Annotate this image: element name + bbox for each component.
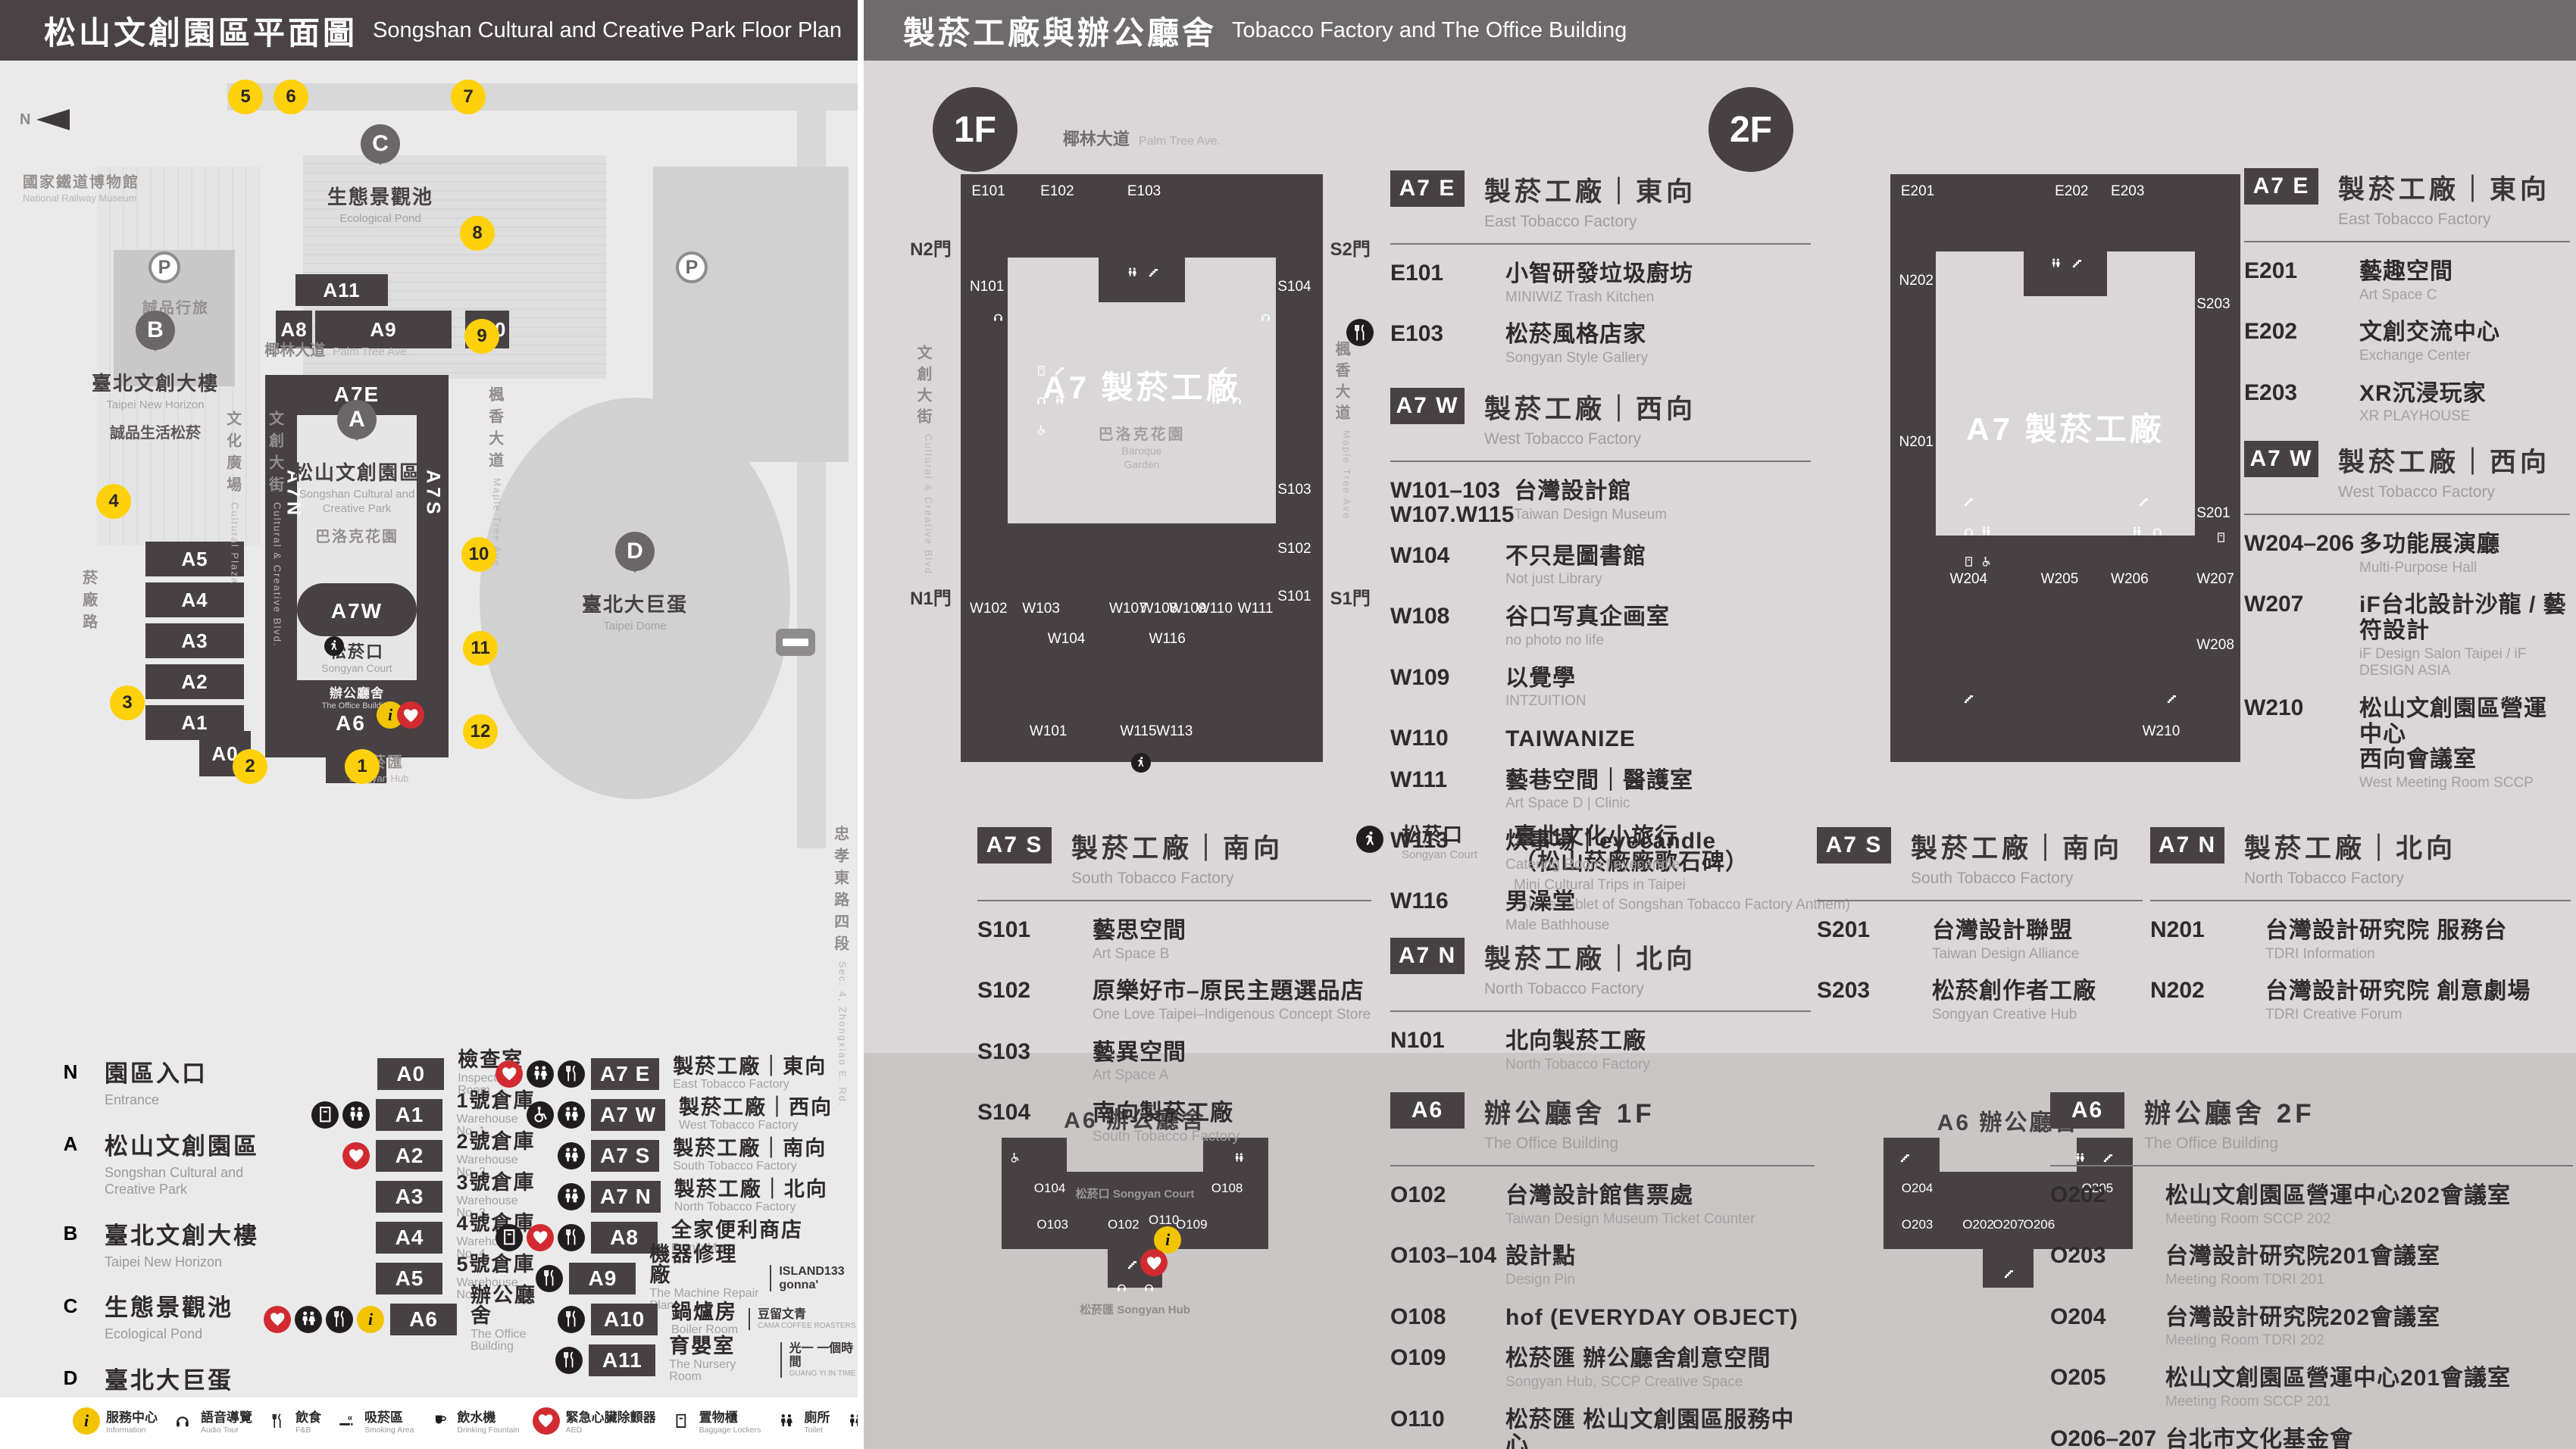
wall <box>2024 251 2108 296</box>
park-label: 菸廠路 <box>79 570 97 635</box>
legend-marker: N <box>53 1054 88 1089</box>
legend-row: A7 W 製菸工廠｜西向West Tobacco Factory <box>485 1098 864 1132</box>
strip-item: 飲食F&B <box>265 1407 321 1435</box>
north-label: N <box>20 111 30 129</box>
room-code: E103 <box>1390 322 1505 346</box>
legend-marker: D <box>53 1361 88 1396</box>
map-icon <box>397 701 424 729</box>
map-room: W204 <box>1950 571 1988 588</box>
room-name-zh: 台灣設計研究院 服務台 <box>2265 918 2507 944</box>
section-rule <box>1390 461 1811 462</box>
north-arrow-icon <box>36 109 70 130</box>
room-name-en: Art Space C <box>2359 287 2453 304</box>
room-code: S203 <box>1817 979 1932 1003</box>
legend-marker: B <box>53 1216 88 1251</box>
parking-icon: P <box>676 251 708 283</box>
map-room: W113 <box>1156 723 1193 740</box>
section-title-en: West Tobacco Factory <box>1484 430 1696 448</box>
map-icon <box>1140 1249 1168 1276</box>
section-title-en: East Tobacco Factory <box>1484 213 1696 231</box>
directory-row: W207 iF台北設計沙龍 / 藝符設計 iF Design Salon Tai… <box>2244 592 2570 680</box>
map-room: W115 <box>1120 723 1156 740</box>
header-park-title-en: Songshan Cultural and Creative Park Floo… <box>373 18 842 43</box>
room-name-zh: 台灣設計館售票處 <box>1505 1183 1755 1209</box>
bus-icon <box>776 629 815 656</box>
legend-places: N 園區入口Entrance A 松山文創園區Songshan Cultural… <box>53 1054 280 1433</box>
directory-section-f2a7n: A7 N 製菸工廠｜北向 North Tobacco Factory N201 … <box>2150 827 2571 1040</box>
room-name-en: Meeting Room TDRI 201 <box>2165 1272 2440 1289</box>
directory-row: W113 炊事場｜eyecandle Catering Room | eyeca… <box>1390 829 1811 873</box>
room-code: W104 <box>1390 544 1505 568</box>
gate-label: S1門 <box>1330 583 1371 610</box>
persons-icon <box>1124 264 1140 280</box>
headset-icon <box>1229 392 1246 408</box>
locker-icon <box>669 1409 693 1433</box>
locker-icon <box>311 1101 339 1129</box>
park-map: N P P A11A8A9A10A5A4A3A2A1A0 國家鐵道博物館Nati… <box>0 61 864 1053</box>
fork-icon <box>265 1409 289 1433</box>
map-icon <box>324 636 344 657</box>
legend-row: A7 S 製菸工廠｜南向South Tobacco Factory <box>485 1138 864 1173</box>
map-room: W111 <box>1238 601 1274 617</box>
map-icon <box>1207 392 1224 409</box>
fork-icon <box>558 1224 585 1251</box>
section-badge: A7 N <box>1390 938 1465 974</box>
persons-icon <box>774 1409 798 1433</box>
persons-icon <box>1207 392 1224 408</box>
map-room: E103 <box>1127 183 1161 200</box>
map-room: W208 <box>2196 637 2234 654</box>
map-icon <box>2135 493 2152 511</box>
legend-place-row: A 松山文創園區Songshan Cultural and Creative P… <box>53 1127 280 1198</box>
room-name-en: Exchange Center <box>2359 348 2500 365</box>
section-title-zh: 製菸工廠｜南向 <box>1911 827 2123 866</box>
map-icon <box>1215 362 1231 379</box>
room-name-zh: 不只是圖書館 <box>1505 544 1646 570</box>
directory-row: S102 原樂好市–原民主題選品店 One Love Taipei–Indige… <box>977 979 1371 1023</box>
room-name-zh: hof (EVERYDAY OBJECT) <box>1505 1305 1799 1331</box>
map-icon <box>1124 1256 1141 1273</box>
map-room: W205 <box>2041 571 2079 588</box>
map-icon <box>2149 523 2166 541</box>
headset-icon <box>2149 523 2166 540</box>
room-code: S103 <box>977 1040 1093 1064</box>
directory-row: S201 台灣設計聯盟 Taiwan Design Alliance <box>1817 918 2143 963</box>
i-icon: i <box>73 1407 100 1435</box>
i-icon: i <box>357 1306 384 1333</box>
room-name-en: no photo no life <box>1505 632 1670 650</box>
cig-icon <box>334 1409 358 1433</box>
room-name-en: TDRI Information <box>2265 946 2507 963</box>
park-building: A2 <box>145 664 244 699</box>
room-code: O203 <box>2050 1244 2165 1268</box>
room-name-zh: 以覺學 <box>1505 666 1587 692</box>
legend-row: A7 E 製菸工廠｜東向East Tobacco Factory <box>485 1057 864 1091</box>
section-title-zh: 辦公廳舍 1F <box>1484 1092 1655 1131</box>
map-room: S103 <box>1277 482 1311 498</box>
room-name-zh: 原樂好市–原民主題選品店 <box>1093 979 1371 1004</box>
room-name-en: Art Space D | Clinic <box>1505 795 1693 813</box>
section-badge: A7 E <box>1390 170 1465 207</box>
wheelchair-icon <box>527 1101 554 1129</box>
room-name-en: Art Space A <box>1093 1067 1186 1085</box>
room-name-zh: 台灣設計研究院 創意劇場 <box>2265 979 2531 1004</box>
entrance-number: 2 <box>233 749 267 784</box>
directory-row: W108 谷口写真企画室 no photo no life <box>1390 604 1811 649</box>
stairs-icon <box>1960 493 1977 510</box>
room-code: N202 <box>2150 979 2265 1003</box>
strip-item: 廁所Toilet <box>774 1407 830 1435</box>
directory-row: E203 XR沉浸玩家 XR PLAYHOUSE <box>2244 381 2570 426</box>
strip-item: 飲水機Drinking Fountain <box>427 1407 519 1435</box>
room-name-en: West Meeting Room SCCP <box>2359 775 2570 792</box>
header-factory: 製菸工廠與辦公廳舍 Tobacco Factory and The Office… <box>864 0 2576 61</box>
map-icon <box>1978 523 1995 541</box>
map-room: W101 <box>1030 723 1068 740</box>
room-code: W109 <box>1390 666 1505 690</box>
map-icon <box>1258 308 1274 326</box>
room-name-en: Meeting Room SCCP 201 <box>2165 1394 2511 1411</box>
legend-place-row: N 園區入口Entrance <box>53 1054 280 1109</box>
parking-icon: P <box>148 251 180 283</box>
room-name-en: North Tobacco Factory <box>1505 1057 1650 1074</box>
locker-icon <box>496 1224 523 1251</box>
room-name-zh: iF台北設計沙龍 / 藝符設計 <box>2359 592 2570 643</box>
strip-item: 吸菸區Smoking Area <box>334 1407 414 1435</box>
directory-row: O110 松菸匯 松山文創園區服務中心 Songyan Hub, SCCP In… <box>1390 1407 1815 1449</box>
map-room: S201 <box>2196 505 2230 522</box>
gate-label: N2門 <box>910 234 952 261</box>
room-code: O102 <box>1390 1183 1505 1207</box>
wheelchair-icon <box>1033 422 1050 439</box>
room-code: S104 <box>977 1101 1093 1125</box>
persons-icon <box>558 1101 585 1129</box>
map-room: E203 <box>2111 183 2144 200</box>
persons-icon <box>295 1306 322 1333</box>
map-icon <box>1960 690 1977 707</box>
room-code: O202 <box>2050 1183 2165 1207</box>
section-title-zh: 製菸工廠｜東向 <box>2338 168 2550 207</box>
section-title-zh: 製菸工廠｜南向 <box>1071 827 1283 866</box>
room-code: O108 <box>1390 1305 1505 1329</box>
locker-icon <box>1960 553 1977 570</box>
map-icon <box>2069 255 2086 272</box>
entrance-number: 8 <box>460 216 495 251</box>
room-code: W101–103W107.W115 <box>1390 479 1514 528</box>
strip-item: 置物櫃Baggage Lockers <box>669 1407 761 1435</box>
map-room: S102 <box>1277 541 1311 557</box>
section-badge: A7 S <box>977 827 1052 863</box>
header-park: 松山文創園區平面圖 Songshan Cultural and Creative… <box>0 0 864 61</box>
directory-row: S101 藝思空間 Art Space B <box>977 918 1371 963</box>
heart-icon <box>496 1060 523 1088</box>
room-name-zh: 台灣設計研究院202會議室 <box>2165 1305 2440 1331</box>
section-title-zh: 製菸工廠｜北向 <box>2244 827 2456 866</box>
legend-marker: C <box>53 1288 88 1323</box>
map-room: O203 <box>1902 1217 1934 1232</box>
map-room: W110 <box>1196 601 1233 617</box>
directory-section-f2a7s: A7 S 製菸工廠｜南向 South Tobacco Factory S201 … <box>1817 827 2143 1040</box>
directory-row: O202 松山文創園區營運中心202會議室 Meeting Room SCCP … <box>2050 1183 2573 1228</box>
map-room: E201 <box>1901 183 1934 200</box>
map-room: W102 <box>970 601 1008 617</box>
legend-row: A10 鍋爐房Boiler Room 豆留文青CAMA COFFEE ROAST… <box>485 1302 864 1336</box>
wall <box>1099 258 1186 302</box>
directory-row: W110 TAIWANIZE <box>1390 726 1811 752</box>
directory-section-f2a7w: A7 W 製菸工廠｜西向 West Tobacco Factory W204–2… <box>2244 441 2570 808</box>
section-title-en: The Office Building <box>2144 1135 2315 1153</box>
section-badge: A6 <box>1390 1092 1465 1129</box>
directory-row: O108 hof (EVERYDAY OBJECT) <box>1390 1305 1815 1331</box>
room-name-zh: 多功能展演廳 <box>2359 532 2500 557</box>
map-icon <box>2000 1265 2017 1282</box>
legend-buildings-b: A7 E 製菸工廠｜東向East Tobacco Factory A7 W 製菸… <box>485 1057 864 1384</box>
headset-icon <box>1140 1279 1157 1295</box>
room-name-zh: 松菸創作者工廠 <box>1932 979 2096 1004</box>
room-name-en: South Tobacco Factory <box>1093 1129 1240 1146</box>
room-code: O103–104 <box>1390 1244 1505 1268</box>
section-rule <box>1390 1010 1811 1012</box>
section-rule <box>2150 900 2571 901</box>
map-room: O202 <box>1962 1217 1994 1232</box>
fork-icon <box>555 1347 583 1374</box>
fork-icon <box>558 1060 585 1088</box>
directory-row: O102 台灣設計館售票處 Taiwan Design Museum Ticke… <box>1390 1183 1815 1228</box>
panel-divider <box>858 0 864 1449</box>
park-label: A6 <box>336 710 366 735</box>
section-title-en: The Office Building <box>1484 1135 1655 1153</box>
park-building: A4 <box>145 582 244 617</box>
songyan-court-label: 松菸口 Songyan Court <box>1076 1185 1195 1201</box>
fork-icon <box>558 1306 585 1333</box>
header-park-title-zh: 松山文創園區平面圖 <box>44 8 358 54</box>
room-name-zh: 南向製菸工廠 <box>1093 1101 1240 1126</box>
room-code: S101 <box>977 918 1093 942</box>
road-top <box>227 83 864 111</box>
directory-row: W104 不只是圖書館 Not just Library <box>1390 544 1811 589</box>
room-name-zh: 松菸匯 辦公廳舍創意空間 <box>1505 1346 1771 1372</box>
room-name-en: Meeting Room SCCP 202 <box>2165 1211 2511 1229</box>
map-room: W207 <box>2196 571 2234 588</box>
section-title-zh: 製菸工廠｜北向 <box>1484 938 1696 976</box>
room-code: W207 <box>2244 592 2359 617</box>
floor-badge-2f: 2F <box>1708 87 1793 172</box>
room-name-en: Songyan Style Gallery <box>1505 350 1648 367</box>
map-room: E102 <box>1040 183 1074 200</box>
section-title-en: North Tobacco Factory <box>1484 980 1696 998</box>
persons-icon <box>2128 523 2145 540</box>
section-title-en: North Tobacco Factory <box>2244 870 2456 888</box>
persons-icon <box>558 1183 585 1210</box>
gate-label: S2門 <box>1330 234 1371 261</box>
headset-icon <box>1960 523 1977 540</box>
room-name-en: Songyan Creative Hub <box>1932 1007 2096 1024</box>
map-icon <box>1052 362 1068 379</box>
directory-row: N202 台灣設計研究院 創意劇場 TDRI Creative Forum <box>2150 979 2571 1023</box>
room-code: E202 <box>2244 320 2359 344</box>
section-badge: A7 W <box>2244 441 2318 477</box>
room-name-en: Taiwan Design Museum Ticket Counter <box>1505 1211 1755 1229</box>
map-icon <box>1960 553 1977 570</box>
persons-icon <box>2048 255 2065 271</box>
walker-icon <box>324 636 344 656</box>
section-title-zh: 製菸工廠｜西向 <box>1484 388 1696 426</box>
legend-place-row: B 臺北文創大樓Taipei New Horizon <box>53 1216 280 1271</box>
room-name-zh: 松菸風格店家 <box>1505 322 1648 348</box>
map-room: S203 <box>2196 296 2230 313</box>
map-icon <box>1033 362 1050 379</box>
map-icon <box>1131 753 1151 773</box>
room-name-en: Design Pin <box>1505 1272 1576 1289</box>
map-room: O104 <box>1034 1181 1066 1196</box>
directory-section-f1a6: A6 辦公廳舍 1F The Office Building O102 台灣設計… <box>1390 1092 1815 1449</box>
map-icon <box>2128 523 2145 541</box>
heart-icon <box>1140 1249 1168 1276</box>
cup-icon <box>427 1409 451 1433</box>
room-code: S201 <box>1817 918 1932 942</box>
room-name-en: XR PLAYHOUSE <box>2359 408 2487 426</box>
directory-row: W111 藝巷空間｜醫護室 Art Space D | Clinic <box>1390 768 1811 813</box>
section-rule <box>1390 1165 1815 1166</box>
directory-row: E101 小智研發垃圾廚坊 MINIWIZ Trash Kitchen <box>1390 261 1811 306</box>
room-name-en: INTZUITION <box>1505 693 1587 710</box>
room-name-zh: 台灣設計館 <box>1514 479 1667 504</box>
directory-row: W109 以覺學 INTZUITION <box>1390 666 1811 710</box>
room-code: W204–206 <box>2244 532 2359 556</box>
directory-section-f2a6: A6 辦公廳舍 2F The Office Building O202 松山文創… <box>2050 1092 2573 1449</box>
map-icon <box>1033 392 1050 409</box>
room-name-en: Meeting Room TDRI 202 <box>2165 1332 2440 1350</box>
wall <box>961 258 1008 762</box>
room-name-zh: 松菸匯 松山文創園區服務中心 <box>1505 1407 1815 1449</box>
strip-item: i 服務中心Information <box>73 1407 158 1435</box>
room-code: W110 <box>1390 726 1505 751</box>
map-room: N101 <box>970 279 1004 295</box>
room-name-zh: XR沉浸玩家 <box>2359 381 2487 407</box>
directory-section-f1a7w: A7 W 製菸工廠｜西向 West Tobacco Factory W101–1… <box>1390 388 1811 951</box>
headset-icon <box>170 1409 195 1433</box>
floor2-map: A7 製菸工廠 E201E202E203N202N201S203S201W204… <box>1890 165 2240 762</box>
room-name-en: Multi-Purpose Hall <box>2359 560 2500 577</box>
fork-icon <box>1346 319 1374 346</box>
room-code: W113 <box>1390 829 1505 853</box>
map-icon <box>2048 255 2065 272</box>
map-icon <box>1052 392 1068 409</box>
gate-label: N1門 <box>910 583 952 610</box>
map-room: N201 <box>1899 434 1934 451</box>
street-palm-tree: 椰林大道Palm Tree Ave. <box>961 126 1323 150</box>
stairs-icon <box>2069 255 2086 271</box>
room-name-zh: 松山文創園區營運中心 <box>2359 696 2570 747</box>
directory-row: O203 台灣設計研究院201會議室 Meeting Room TDRI 201 <box>2050 1244 2573 1288</box>
map-room: O102 <box>1108 1217 1140 1232</box>
map-icon <box>1146 264 1162 281</box>
room-name-zh: 藝異空間 <box>1093 1040 1186 1066</box>
map-room: E101 <box>971 183 1005 200</box>
a7-factory-label: A7 製菸工廠 <box>1940 404 2192 450</box>
map-room: W104 <box>1048 631 1124 714</box>
directory-section-f1a7e: A7 E 製菸工廠｜東向 East Tobacco Factory E101 小… <box>1390 170 1811 383</box>
room-name-zh: 藝趣空間 <box>2359 259 2453 285</box>
room-code: W116 <box>1390 889 1505 913</box>
heart-icon <box>527 1224 554 1251</box>
room-name-zh: 文創交流中心 <box>2359 320 2500 345</box>
section-title-en: East Tobacco Factory <box>2338 211 2550 229</box>
map-room: O207 <box>1993 1217 2024 1232</box>
directory-row: E202 文創交流中心 Exchange Center <box>2244 320 2570 364</box>
park-building: A11 <box>295 274 388 306</box>
room-name-zh: 台灣設計聯盟 <box>1932 918 2079 944</box>
legend-row: A7 N 製菸工廠｜北向North Tobacco Factory <box>485 1179 864 1213</box>
room-code: W111 <box>1390 768 1505 792</box>
directory-row: S203 松菸創作者工廠 Songyan Creative Hub <box>1817 979 2143 1023</box>
park-label: 巴洛克花園 <box>315 529 399 547</box>
directory-row: O103–104 設計點 Design Pin <box>1390 1244 1815 1288</box>
map-room: W206 <box>2111 571 2149 588</box>
map-room: W210 <box>2143 723 2181 740</box>
heart-icon <box>397 701 424 729</box>
section-title-en: West Tobacco Factory <box>2338 483 2550 501</box>
songyan-hub-label: 松菸匯 Songyan Hub <box>1080 1301 1190 1317</box>
room-name-zh: 谷口写真企画室 <box>1505 604 1670 630</box>
directory-row: O204 台灣設計研究院202會議室 Meeting Room TDRI 202 <box>2050 1305 2573 1350</box>
map-room: N202 <box>1899 273 1934 289</box>
room-name-en: Catering Room | eyecandle <box>1505 857 1716 874</box>
directory-row: S104 南向製菸工廠 South Tobacco Factory <box>977 1101 1371 1145</box>
locker-icon <box>2212 529 2229 546</box>
stairs-icon <box>1052 362 1068 379</box>
heart-icon <box>533 1407 560 1435</box>
map-icon <box>1140 1279 1157 1296</box>
entrance-number: 10 <box>461 537 496 572</box>
map-pin: B 臺北文創大樓Taipei New Horizon誠品生活松菸 <box>80 311 231 442</box>
section-title-zh: 製菸工廠｜東向 <box>1484 170 1696 209</box>
map-room: E202 <box>2055 183 2088 200</box>
room-name-en: One Love Taipei–Indigenous Concept Store <box>1093 1007 1371 1024</box>
map-icon <box>2212 529 2229 547</box>
persons-icon <box>527 1060 554 1088</box>
stairs-icon <box>1215 362 1231 379</box>
section-rule <box>2244 514 2570 515</box>
room-name-zh: 台北市文化基金會 <box>2165 1427 2509 1449</box>
section-rule <box>2050 1165 2573 1166</box>
directory-row: E103 松菸風格店家 Songyan Style Gallery <box>1390 322 1811 367</box>
park-label: A7W <box>331 598 383 623</box>
room-name-zh: 北向製菸工廠 <box>1505 1029 1650 1054</box>
directory-row: O205 松山文創園區營運中心201會議室 Meeting Room SCCP … <box>2050 1366 2573 1410</box>
room-name-zh: 松山文創園區營運中心201會議室 <box>2165 1366 2511 1391</box>
wall <box>1276 258 1323 762</box>
room-name-en: Not just Library <box>1505 571 1646 589</box>
room-name-en: Male Bathhouse <box>1505 917 1609 935</box>
section-rule <box>1817 900 2143 901</box>
map-pin: D 臺北大巨蛋Taipei Dome <box>559 532 711 634</box>
room-name-zh: 松山文創園區營運中心202會議室 <box>2165 1183 2511 1209</box>
room-name-en: Taiwan Design Alliance <box>1932 946 2079 963</box>
map-icon <box>1960 523 1977 541</box>
section-badge: A6 <box>2050 1092 2124 1129</box>
entrance-number: 7 <box>451 80 486 114</box>
section-badge: A7 W <box>1390 388 1465 424</box>
north-arrow: N <box>20 109 70 130</box>
map-room: O108 <box>1211 1181 1243 1196</box>
entrance-number: 6 <box>274 80 308 114</box>
room-code: O110 <box>1390 1407 1505 1432</box>
park-building: A3 <box>145 623 244 658</box>
stairs-icon <box>1146 264 1162 280</box>
strip-item: 緊急心臟除顫器AED <box>533 1407 656 1435</box>
section-title-en: South Tobacco Factory <box>1071 870 1283 888</box>
